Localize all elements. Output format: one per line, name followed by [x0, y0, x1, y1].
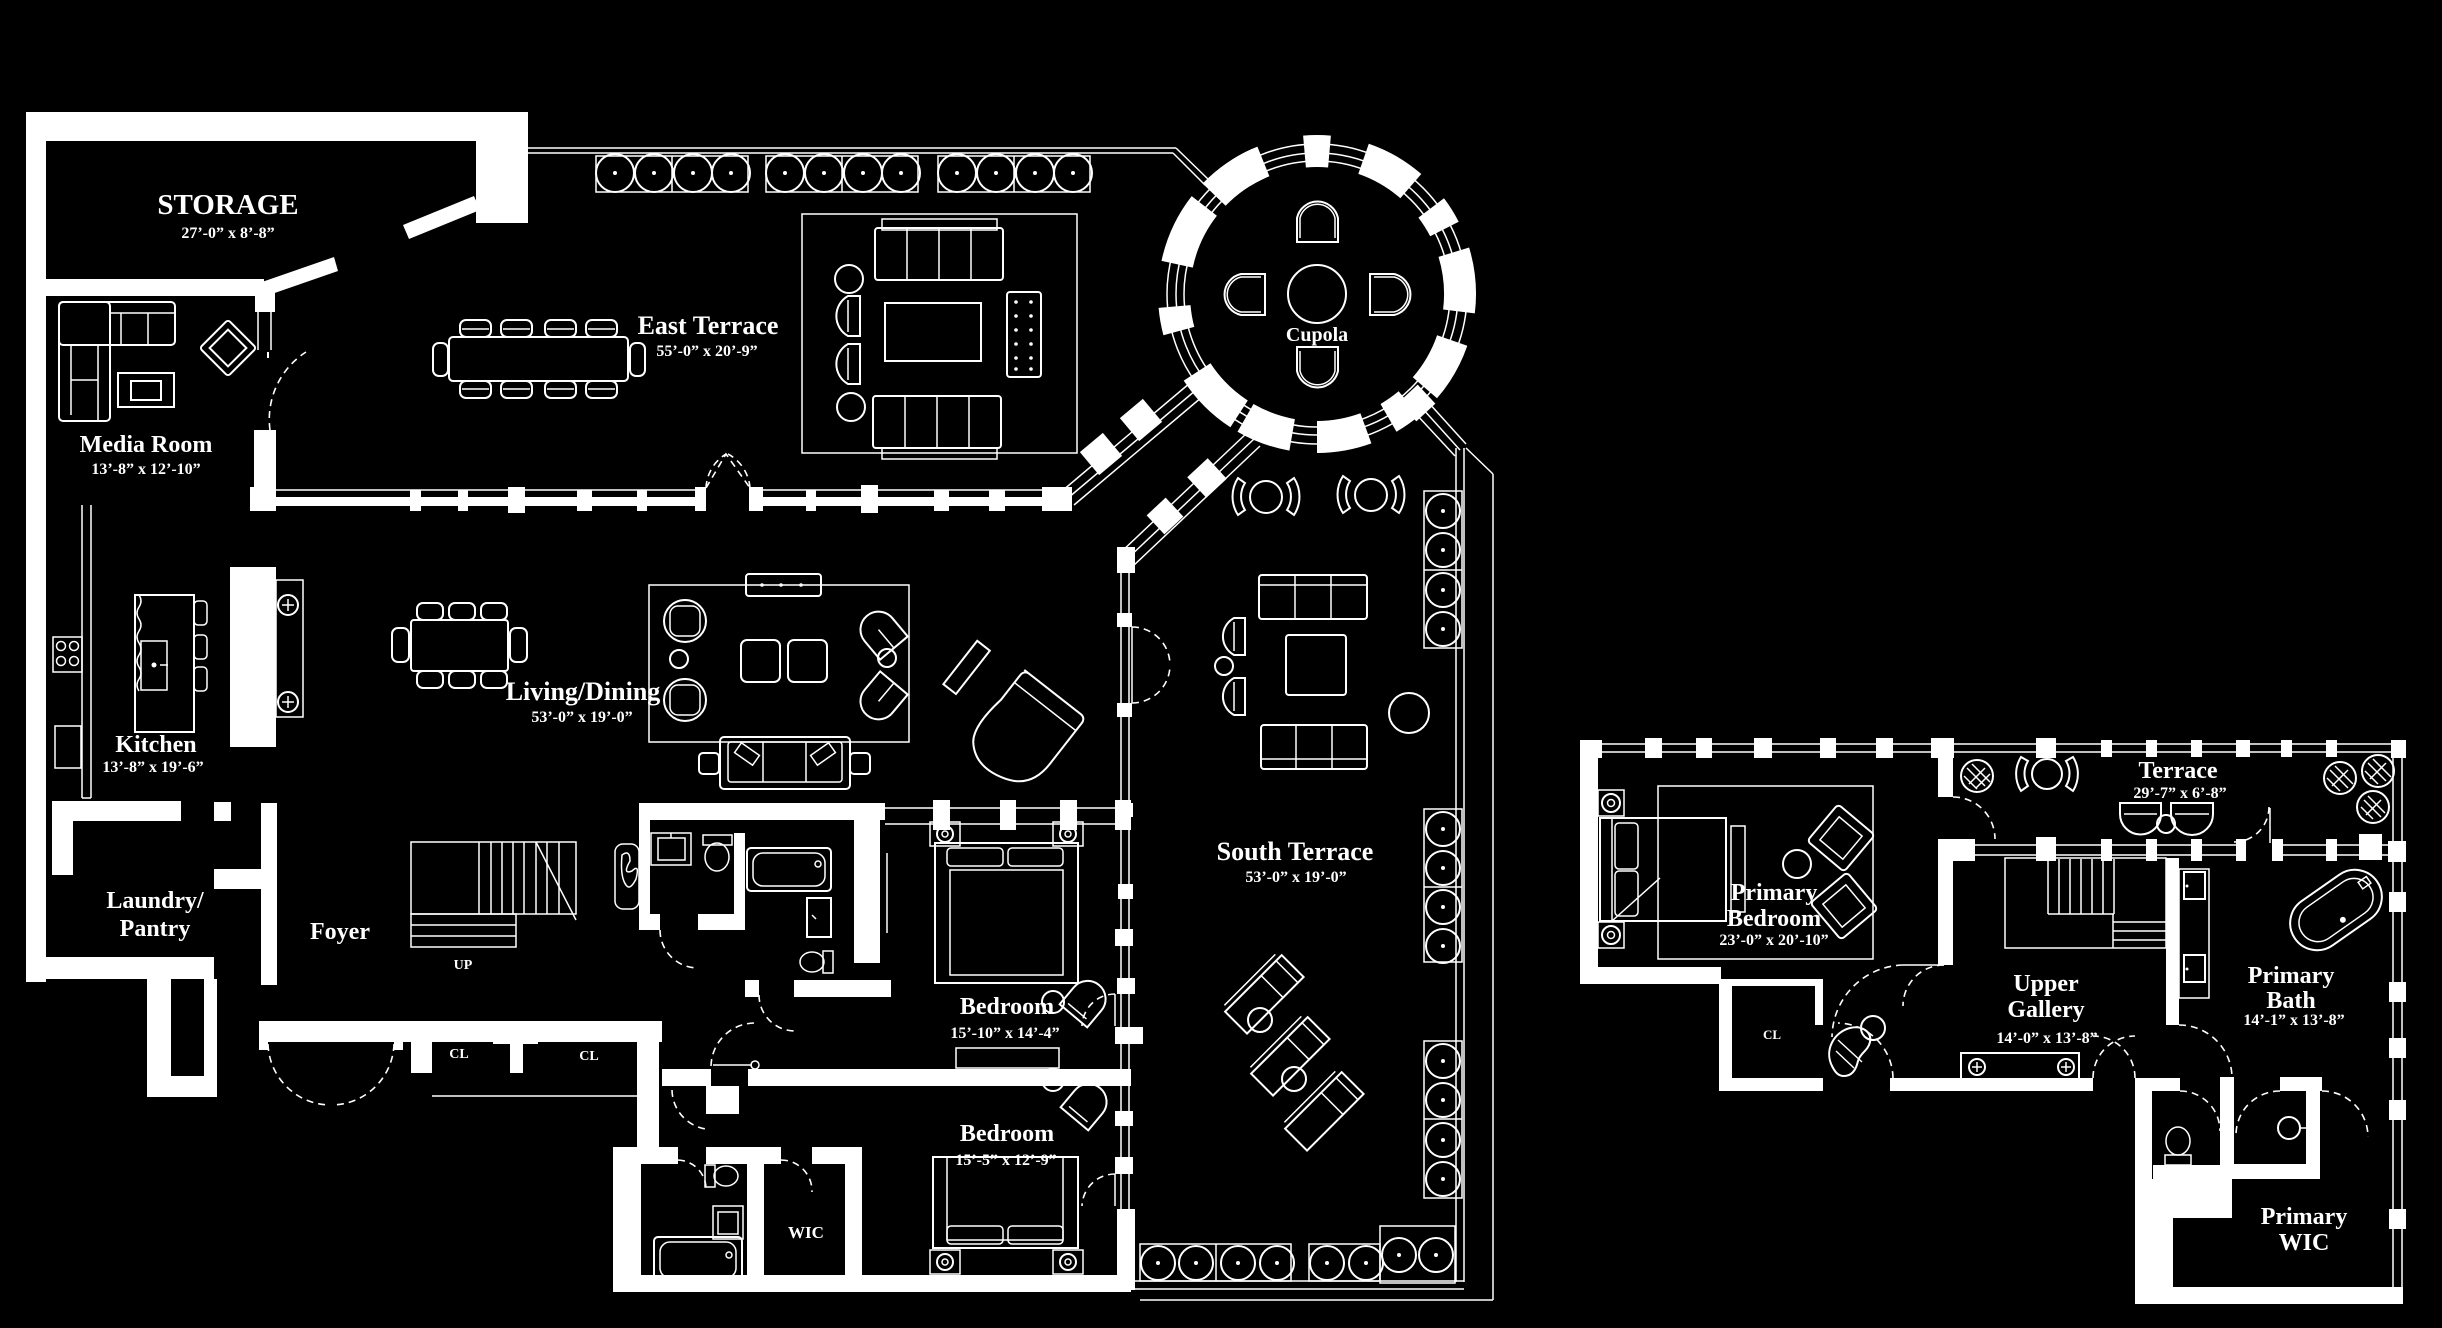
svg-text:STORAGE: STORAGE [157, 189, 298, 221]
svg-text:CL: CL [1763, 1027, 1781, 1042]
svg-text:Bedroom: Bedroom [960, 1121, 1054, 1147]
svg-text:Primary: Primary [2248, 963, 2335, 989]
svg-text:53’-0” x 19’-0”: 53’-0” x 19’-0” [1245, 869, 1346, 886]
svg-text:Laundry/: Laundry/ [106, 888, 204, 914]
svg-text:53’-0” x 19’-0”: 53’-0” x 19’-0” [531, 709, 632, 726]
svg-text:East Terrace: East Terrace [638, 311, 779, 340]
svg-text:29’-7” x 6’-8”: 29’-7” x 6’-8” [2133, 785, 2226, 802]
svg-text:Terrace: Terrace [2138, 758, 2217, 784]
svg-text:Primary: Primary [1731, 880, 1818, 906]
svg-text:Bedroom: Bedroom [960, 994, 1054, 1020]
svg-text:South Terrace: South Terrace [1217, 837, 1374, 866]
svg-text:Foyer: Foyer [310, 919, 370, 945]
svg-text:13’-8” x 19’-6”: 13’-8” x 19’-6” [102, 759, 203, 776]
svg-text:Upper: Upper [2013, 971, 2079, 997]
svg-text:Bedroom: Bedroom [1727, 906, 1821, 932]
svg-text:CL: CL [449, 1047, 468, 1062]
svg-text:Gallery: Gallery [2007, 997, 2084, 1023]
svg-text:Kitchen: Kitchen [115, 732, 196, 758]
svg-text:UP: UP [454, 958, 473, 973]
svg-text:23’-0” x 20’-10”: 23’-0” x 20’-10” [1719, 932, 1828, 949]
svg-text:55’-0” x 20’-9”: 55’-0” x 20’-9” [656, 343, 757, 360]
svg-text:Media Room: Media Room [80, 432, 213, 458]
svg-text:Primary: Primary [2261, 1204, 2348, 1230]
svg-text:15’-5” x 12’-9”: 15’-5” x 12’-9” [955, 1152, 1056, 1169]
svg-text:Cupola: Cupola [1286, 324, 1348, 346]
svg-text:WIC: WIC [788, 1223, 824, 1242]
svg-text:CL: CL [579, 1049, 598, 1064]
svg-text:27’-0” x 8’-8”: 27’-0” x 8’-8” [181, 225, 274, 242]
svg-text:Living/Dining: Living/Dining [506, 677, 661, 706]
svg-text:14’-0” x 13’-8”: 14’-0” x 13’-8” [1996, 1030, 2097, 1047]
svg-text:Pantry: Pantry [120, 916, 191, 942]
svg-text:13’-8” x 12’-10”: 13’-8” x 12’-10” [91, 461, 200, 478]
svg-text:WIC: WIC [2279, 1230, 2330, 1256]
svg-text:Bath: Bath [2266, 988, 2315, 1014]
svg-text:15’-10” x 14’-4”: 15’-10” x 14’-4” [950, 1025, 1059, 1042]
svg-text:14’-1” x 13’-8”: 14’-1” x 13’-8” [2243, 1012, 2344, 1029]
